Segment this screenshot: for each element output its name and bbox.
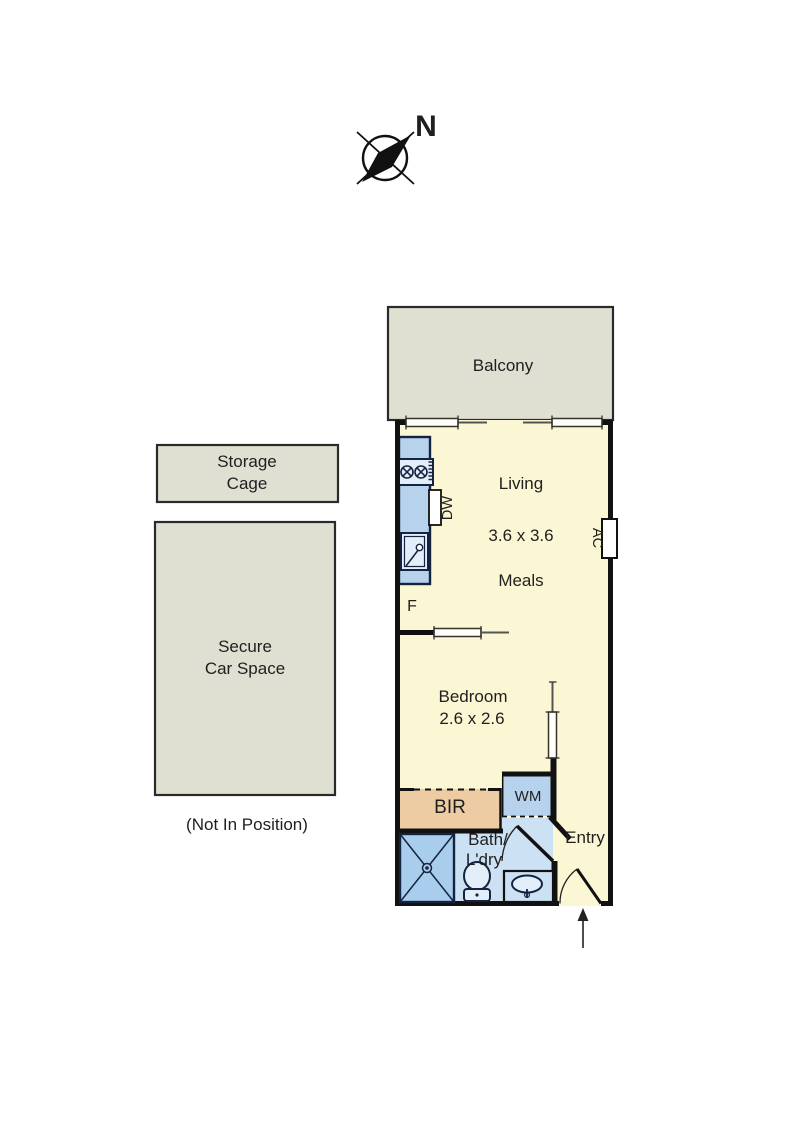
washing-machine-label: WM: [515, 788, 542, 805]
bedroom-label: Bedroom: [439, 687, 508, 706]
sliding-panel: [549, 712, 557, 758]
storage-cage-label-line1: Storage: [217, 452, 277, 471]
cooktop-icon: [396, 459, 433, 485]
balcony-area: Balcony: [388, 307, 613, 420]
north-label: N: [415, 110, 437, 143]
sink-icon: [401, 533, 428, 570]
storage-cage-area: Storage Cage: [157, 445, 338, 502]
bedroom-dimensions: 2.6 x 2.6: [439, 709, 504, 728]
air-conditioner-label: AC: [589, 528, 605, 548]
sliding-panel: [552, 419, 602, 427]
car-space-note: (Not In Position): [186, 815, 308, 834]
storage-cage-label-line2: Cage: [227, 474, 268, 493]
vanity-icon: [504, 871, 553, 902]
washing-machine: WM: [502, 776, 551, 817]
built-in-robe: BIR: [397, 788, 501, 831]
robe-label: BIR: [434, 797, 466, 818]
car-space-label-line1: Secure: [218, 637, 272, 656]
fridge-label: F: [407, 598, 417, 615]
sliding-panel: [406, 419, 458, 427]
entry-arrow-icon: [578, 908, 589, 948]
balcony-label: Balcony: [473, 356, 534, 375]
floor-plan-page: N Balcony Storage Cage Secure Car Space …: [0, 0, 800, 1132]
car-space-area: Secure Car Space: [155, 522, 335, 795]
car-space-label-line2: Car Space: [205, 659, 285, 678]
bath-label-line2: L'dry: [466, 850, 503, 869]
living-label: Living: [499, 474, 543, 493]
north-compass-icon: [357, 132, 414, 184]
floor-plan-drawing: N Balcony Storage Cage Secure Car Space …: [0, 0, 800, 1132]
entry-label: Entry: [565, 828, 605, 847]
dishwasher-label: DW: [440, 496, 456, 520]
meals-label: Meals: [498, 571, 543, 590]
living-dimensions: 3.6 x 3.6: [488, 526, 553, 545]
bath-label-line1: Bath/: [468, 830, 508, 849]
shower-icon: [400, 834, 454, 902]
sliding-panel: [434, 629, 481, 637]
